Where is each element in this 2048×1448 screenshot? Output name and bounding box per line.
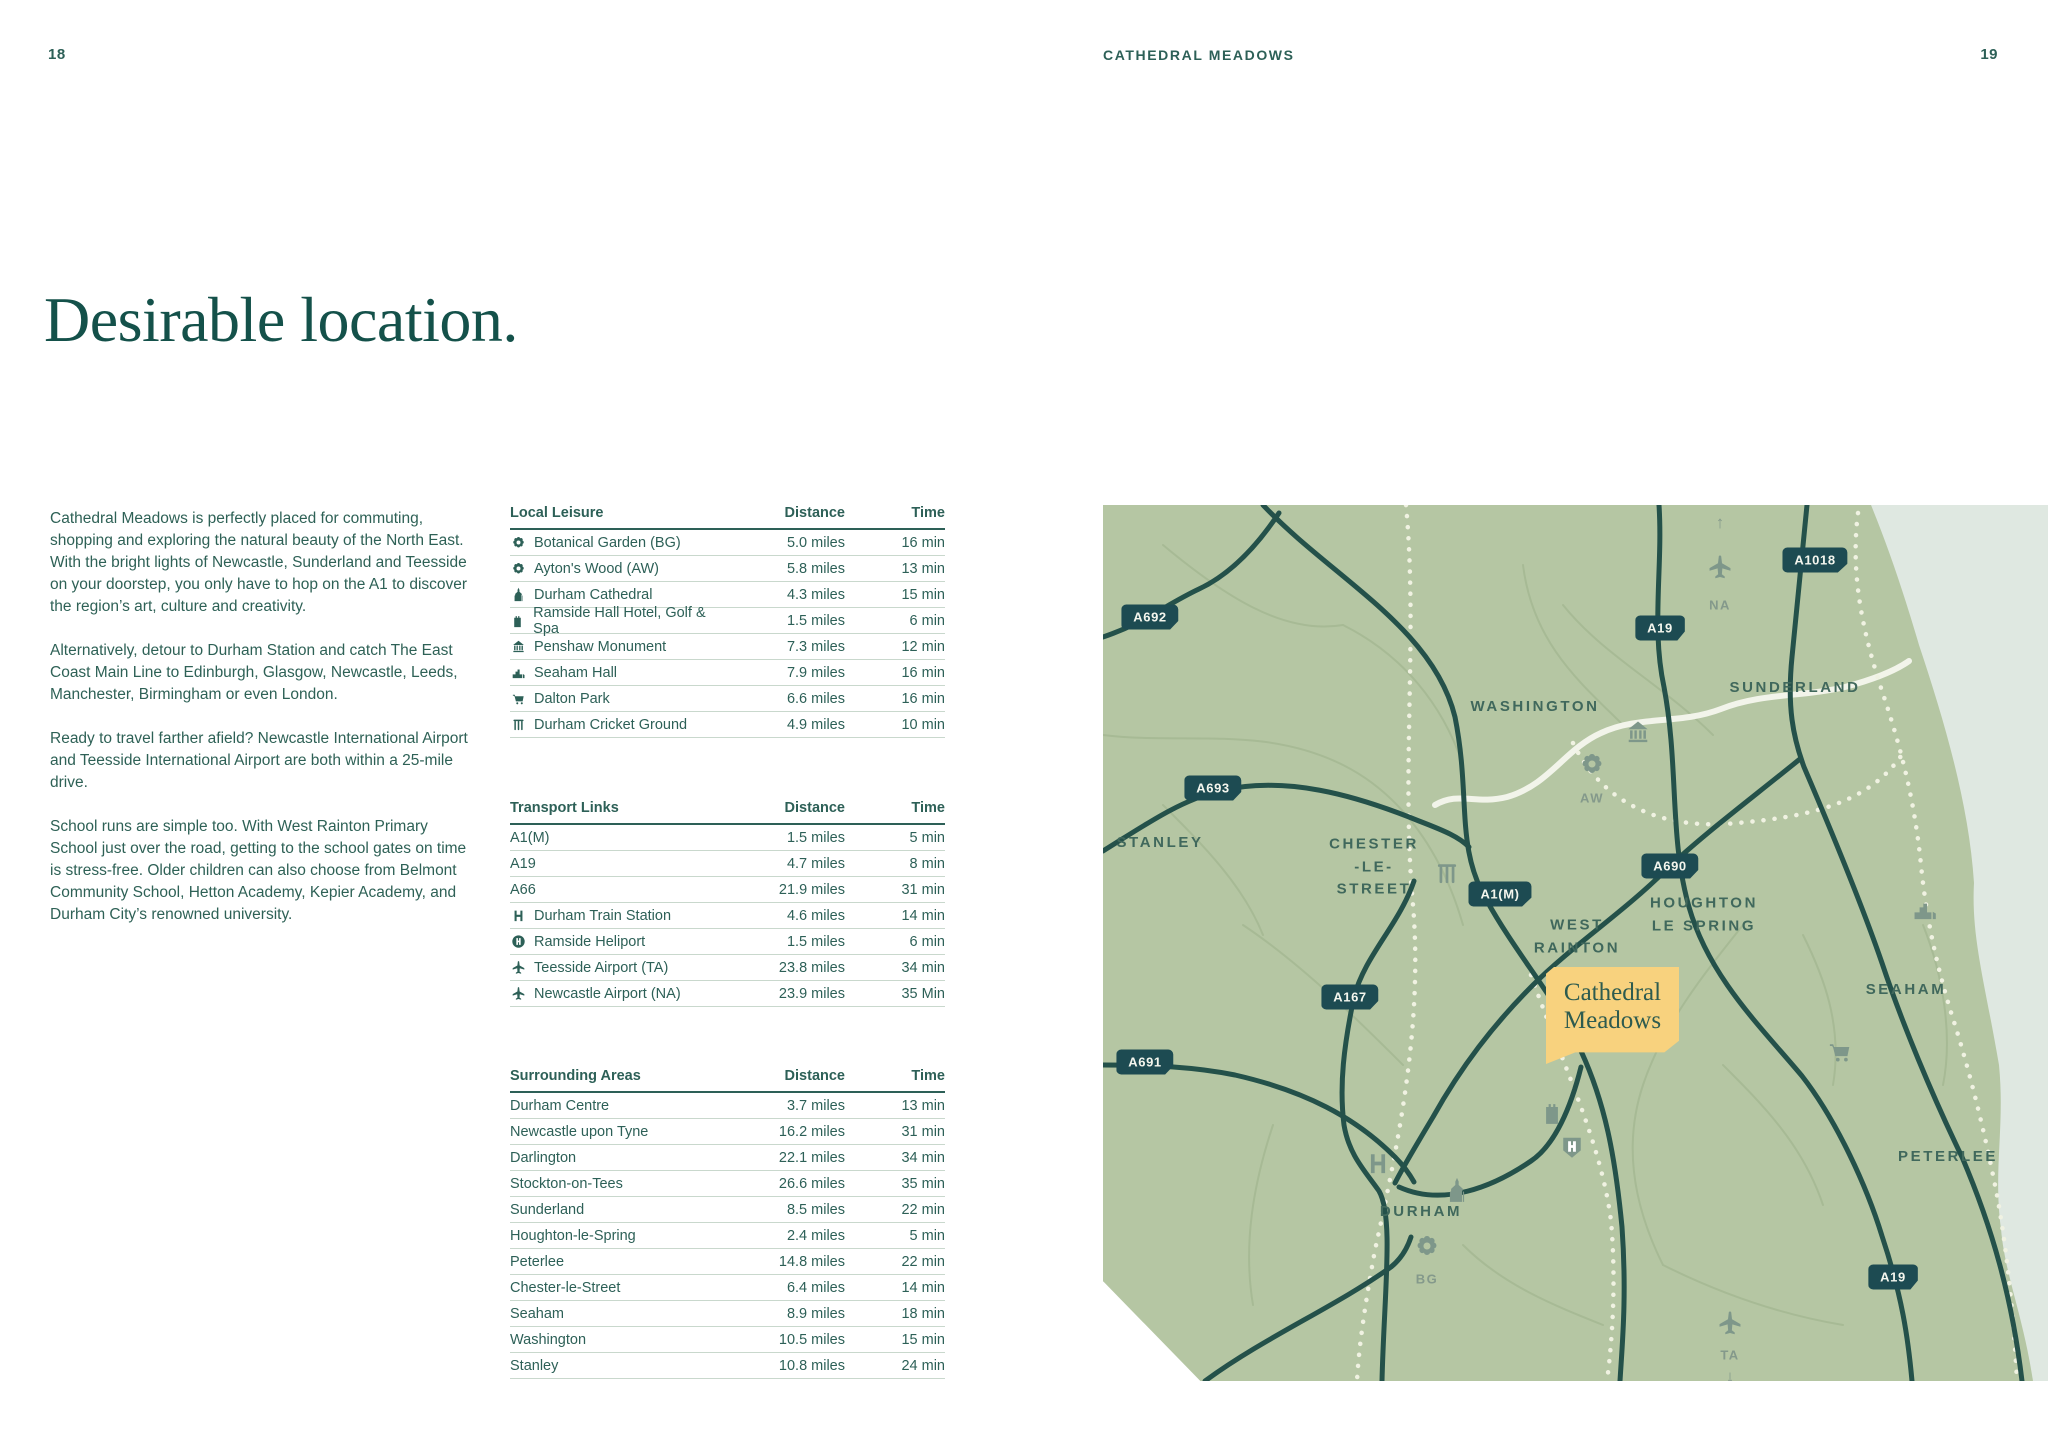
row-name: Ayton's Wood (AW) xyxy=(510,561,725,577)
row-name: A19 xyxy=(510,856,725,872)
train-icon xyxy=(510,908,526,923)
bg-label: BG xyxy=(1416,1272,1439,1287)
row-distance: 23.8 miles xyxy=(725,960,845,976)
table-row: Sunderland8.5 miles22 min xyxy=(510,1197,945,1223)
table-header: Local Leisure Distance Time xyxy=(510,505,945,530)
row-distance: 7.3 miles xyxy=(725,639,845,655)
road-southwest xyxy=(1205,1237,1411,1381)
table-row: Botanical Garden (BG)5.0 miles16 min xyxy=(510,530,945,556)
row-distance: 4.6 miles xyxy=(725,908,845,924)
row-time: 8 min xyxy=(845,856,945,872)
table-header: Transport Links Distance Time xyxy=(510,800,945,825)
row-time: 5 min xyxy=(845,1228,945,1244)
row-distance: 22.1 miles xyxy=(725,1150,845,1166)
distance-column-header: Distance xyxy=(725,1068,845,1084)
table-row: Stockton-on-Tees26.6 miles35 min xyxy=(510,1171,945,1197)
marker-text: Cathedral Meadows xyxy=(1546,967,1679,1035)
road-badge-a167: A167 xyxy=(1321,985,1378,1010)
row-time: 6 min xyxy=(845,934,945,950)
row-name: Penshaw Monument xyxy=(510,639,725,655)
row-name: Ramside Hall Hotel, Golf & Spa xyxy=(510,605,725,637)
row-name: Dalton Park xyxy=(510,691,725,707)
row-name: Stanley xyxy=(510,1358,725,1374)
row-name: Teesside Airport (TA) xyxy=(510,960,725,976)
row-time: 16 min xyxy=(845,665,945,681)
row-name: Seaham xyxy=(510,1306,725,1322)
row-distance: 4.9 miles xyxy=(725,717,845,733)
row-distance: 10.8 miles xyxy=(725,1358,845,1374)
row-name: Peterlee xyxy=(510,1254,725,1270)
row-time: 31 min xyxy=(845,882,945,898)
table-row: Stanley10.8 miles24 min xyxy=(510,1353,945,1379)
row-name: Washington xyxy=(510,1332,725,1348)
shopping-icon xyxy=(510,691,526,706)
location-map: A692 A693 A1018 A19 A690 A1(M) A167 A691… xyxy=(1103,505,2048,1381)
aytons-wood-flower-icon xyxy=(1579,751,1606,778)
row-distance: 8.9 miles xyxy=(725,1306,845,1322)
row-time: 15 min xyxy=(845,1332,945,1348)
row-time: 16 min xyxy=(845,535,945,551)
map-label-houghton-le-spring: HOUGHTON LE SPRING xyxy=(1650,893,1758,938)
row-time: 34 min xyxy=(845,960,945,976)
row-distance: 7.9 miles xyxy=(725,665,845,681)
arrow-down-icon: ↓ xyxy=(1726,1367,1735,1387)
distance-column-header: Distance xyxy=(725,800,845,816)
row-name: Newcastle Airport (NA) xyxy=(510,986,725,1002)
table-header: Surrounding Areas Distance Time xyxy=(510,1068,945,1093)
table-row: Houghton-le-Spring2.4 miles5 min xyxy=(510,1223,945,1249)
row-time: 22 min xyxy=(845,1254,945,1270)
table-title: Surrounding Areas xyxy=(510,1068,725,1084)
road-badge-a692: A692 xyxy=(1121,605,1178,630)
table-row: Peterlee14.8 miles22 min xyxy=(510,1249,945,1275)
row-distance: 26.6 miles xyxy=(725,1176,845,1192)
row-distance: 1.5 miles xyxy=(725,830,845,846)
local-leisure-table: Local Leisure Distance Time Botanical Ga… xyxy=(510,505,945,738)
na-airport-label: NA xyxy=(1709,598,1731,613)
row-time: 13 min xyxy=(845,1098,945,1114)
penshaw-monument-icon xyxy=(1625,719,1652,746)
row-distance: 1.5 miles xyxy=(725,934,845,950)
table-row: Teesside Airport (TA)23.8 miles34 min xyxy=(510,955,945,981)
row-time: 18 min xyxy=(845,1306,945,1322)
map-label-stanley: STANLEY xyxy=(1116,832,1203,855)
seaham-hall-building-icon xyxy=(1912,896,1939,923)
map-label-peterlee: PETERLEE xyxy=(1898,1146,1998,1169)
row-time: 31 min xyxy=(845,1124,945,1140)
flower-icon xyxy=(510,561,526,576)
cricket-icon xyxy=(510,717,526,732)
road-badge-a690: A690 xyxy=(1641,854,1698,879)
table-row: Penshaw Monument7.3 miles12 min xyxy=(510,634,945,660)
table-title: Transport Links xyxy=(510,800,725,816)
row-time: 22 min xyxy=(845,1202,945,1218)
map-label-west-rainton: WEST RAINTON xyxy=(1534,915,1620,960)
table-row: A6621.9 miles31 min xyxy=(510,877,945,903)
sunderland-loop-line xyxy=(1573,743,1903,824)
page-number-right: 19 xyxy=(1980,46,1998,63)
row-time: 13 min xyxy=(845,561,945,577)
cathedral-icon xyxy=(510,587,526,602)
time-column-header: Time xyxy=(845,1068,945,1084)
table-title: Local Leisure xyxy=(510,505,725,521)
row-distance: 6.6 miles xyxy=(725,691,845,707)
row-name: Durham Cricket Ground xyxy=(510,717,725,733)
hotel-shield-icon xyxy=(1559,1134,1586,1161)
row-distance: 2.4 miles xyxy=(725,1228,845,1244)
row-distance: 14.8 miles xyxy=(725,1254,845,1270)
row-time: 35 min xyxy=(845,1176,945,1192)
intro-copy: Cathedral Meadows is perfectly placed fo… xyxy=(50,508,468,948)
row-distance: 10.5 miles xyxy=(725,1332,845,1348)
road-badge-a19-south: A19 xyxy=(1868,1265,1918,1290)
row-name: Houghton-le-Spring xyxy=(510,1228,725,1244)
plane-icon xyxy=(510,960,526,975)
table-row: Newcastle Airport (NA)23.9 miles35 Min xyxy=(510,981,945,1007)
row-distance: 5.8 miles xyxy=(725,561,845,577)
monument-icon xyxy=(510,639,526,654)
road-badge-a691: A691 xyxy=(1116,1050,1173,1075)
ta-airport-label: TA xyxy=(1720,1348,1739,1363)
row-name: A1(M) xyxy=(510,830,725,846)
table-row: Ramside Hall Hotel, Golf & Spa1.5 miles6… xyxy=(510,608,945,634)
row-time: 14 min xyxy=(845,908,945,924)
flower-icon xyxy=(510,535,526,550)
dalton-park-shopping-icon xyxy=(1827,1038,1854,1065)
surrounding-areas-table: Surrounding Areas Distance Time Durham C… xyxy=(510,1068,945,1379)
table-row: Washington10.5 miles15 min xyxy=(510,1327,945,1353)
sea xyxy=(1871,505,2048,1381)
table-row: A1(M)1.5 miles5 min xyxy=(510,825,945,851)
cathedral-meadows-marker: Cathedral Meadows xyxy=(1546,967,1679,1064)
row-distance: 1.5 miles xyxy=(725,613,845,629)
row-time: 10 min xyxy=(845,717,945,733)
cricket-ground-icon xyxy=(1434,860,1461,887)
row-name: Durham Cathedral xyxy=(510,587,725,603)
row-time: 5 min xyxy=(845,830,945,846)
brochure-header: CATHEDRAL MEADOWS xyxy=(1103,47,1295,63)
page-number-left: 18 xyxy=(48,46,66,63)
table-row: Durham Centre3.7 miles13 min xyxy=(510,1093,945,1119)
intro-paragraph: Ready to travel farther afield? Newcastl… xyxy=(50,728,468,794)
row-name: A66 xyxy=(510,882,725,898)
map-label-durham: DURHAM xyxy=(1380,1201,1462,1224)
row-distance: 4.7 miles xyxy=(725,856,845,872)
row-name: Newcastle upon Tyne xyxy=(510,1124,725,1140)
row-time: 14 min xyxy=(845,1280,945,1296)
road-badge-a1018: A1018 xyxy=(1782,548,1847,573)
map-label-washington: WASHINGTON xyxy=(1470,696,1599,719)
row-name: Durham Train Station xyxy=(510,908,725,924)
table-row: Ayton's Wood (AW)5.8 miles13 min xyxy=(510,556,945,582)
table-row: Ramside Heliport1.5 miles6 min xyxy=(510,929,945,955)
aw-label: AW xyxy=(1580,791,1604,806)
road-badge-a693: A693 xyxy=(1184,776,1241,801)
road-badge-a19-north: A19 xyxy=(1635,616,1685,641)
map-label-sunderland: SUNDERLAND xyxy=(1730,677,1861,700)
transport-links-table: Transport Links Distance Time A1(M)1.5 m… xyxy=(510,800,945,1007)
distance-column-header: Distance xyxy=(725,505,845,521)
building-icon xyxy=(510,665,526,680)
table-row: Durham Cricket Ground4.9 miles10 min xyxy=(510,712,945,738)
map-label-seaham: SEAHAM xyxy=(1866,979,1947,1002)
ramside-hall-castle-icon xyxy=(1539,1099,1566,1126)
row-time: 6 min xyxy=(845,613,945,629)
row-distance: 5.0 miles xyxy=(725,535,845,551)
durham-train-station-icon xyxy=(1365,1150,1392,1177)
row-name: Chester-le-Street xyxy=(510,1280,725,1296)
row-distance: 16.2 miles xyxy=(725,1124,845,1140)
table-row: Seaham Hall7.9 miles16 min xyxy=(510,660,945,686)
row-time: 24 min xyxy=(845,1358,945,1374)
arrow-up-icon: ↑ xyxy=(1716,513,1725,533)
row-distance: 8.5 miles xyxy=(725,1202,845,1218)
row-time: 34 min xyxy=(845,1150,945,1166)
table-row: A194.7 miles8 min xyxy=(510,851,945,877)
row-distance: 3.7 miles xyxy=(725,1098,845,1114)
row-name: Botanical Garden (BG) xyxy=(510,535,725,551)
row-name: Durham Centre xyxy=(510,1098,725,1114)
row-time: 12 min xyxy=(845,639,945,655)
row-name: Darlington xyxy=(510,1150,725,1166)
table-row: Chester-le-Street6.4 miles14 min xyxy=(510,1275,945,1301)
intro-paragraph: School runs are simple too. With West Ra… xyxy=(50,816,468,926)
page-title: Desirable location. xyxy=(44,283,518,357)
teesside-airport-plane-icon xyxy=(1717,1310,1744,1337)
time-column-header: Time xyxy=(845,505,945,521)
castle-icon xyxy=(510,613,525,628)
table-row: Durham Train Station4.6 miles14 min xyxy=(510,903,945,929)
row-time: 15 min xyxy=(845,587,945,603)
botanical-garden-flower-icon xyxy=(1414,1233,1441,1260)
newcastle-airport-plane-icon xyxy=(1707,554,1734,581)
road-a167 xyxy=(1342,881,1414,1381)
heliport-icon xyxy=(510,934,526,949)
row-time: 16 min xyxy=(845,691,945,707)
row-distance: 4.3 miles xyxy=(725,587,845,603)
durham-cathedral-icon xyxy=(1444,1177,1471,1204)
table-row: Darlington22.1 miles34 min xyxy=(510,1145,945,1171)
time-column-header: Time xyxy=(845,800,945,816)
intro-paragraph: Cathedral Meadows is perfectly placed fo… xyxy=(50,508,468,618)
row-name: Ramside Heliport xyxy=(510,934,725,950)
row-name: Sunderland xyxy=(510,1202,725,1218)
table-row: Newcastle upon Tyne16.2 miles31 min xyxy=(510,1119,945,1145)
row-distance: 21.9 miles xyxy=(725,882,845,898)
table-row: Dalton Park6.6 miles16 min xyxy=(510,686,945,712)
row-name: Seaham Hall xyxy=(510,665,725,681)
row-distance: 23.9 miles xyxy=(725,986,845,1002)
plane-icon xyxy=(510,986,526,1001)
map-label-chester-le-street: CHESTER -LE- STREET xyxy=(1329,833,1419,901)
row-time: 35 Min xyxy=(845,986,945,1002)
intro-paragraph: Alternatively, detour to Durham Station … xyxy=(50,640,468,706)
table-row: Seaham8.9 miles18 min xyxy=(510,1301,945,1327)
row-name: Stockton-on-Tees xyxy=(510,1176,725,1192)
row-distance: 6.4 miles xyxy=(725,1280,845,1296)
road-badge-a1m: A1(M) xyxy=(1468,882,1531,907)
